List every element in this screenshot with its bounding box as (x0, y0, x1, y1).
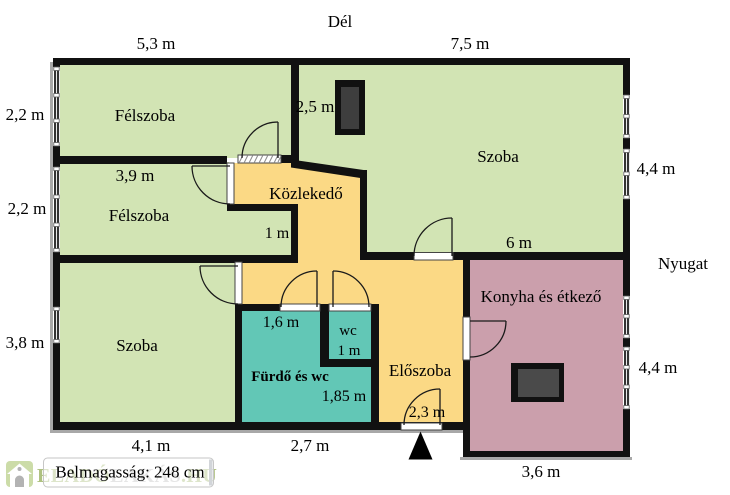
svg-text:Szoba: Szoba (477, 147, 519, 166)
svg-text:6 m: 6 m (506, 233, 532, 252)
svg-text:4,1 m: 4,1 m (132, 436, 171, 455)
svg-text:Közlekedő: Közlekedő (269, 184, 343, 203)
svg-text:Dél: Dél (328, 12, 353, 31)
svg-text:Nyugat: Nyugat (658, 254, 708, 273)
svg-text:Fürdő és wc: Fürdő és wc (251, 369, 329, 385)
svg-text:Előszoba: Előszoba (389, 361, 452, 380)
svg-text:4,4 m: 4,4 m (637, 159, 676, 178)
svg-text:wc: wc (339, 323, 357, 339)
svg-text:2,7 m: 2,7 m (291, 436, 330, 455)
svg-text:3,9 m: 3,9 m (116, 166, 155, 185)
svg-text:2,2 m: 2,2 m (6, 105, 45, 124)
svg-text:1 m: 1 m (265, 225, 290, 242)
svg-text:5,3 m: 5,3 m (137, 34, 176, 53)
svg-text:Konyha és étkező: Konyha és étkező (481, 287, 602, 306)
svg-text:3,8 m: 3,8 m (6, 333, 45, 352)
svg-text:2,2 m: 2,2 m (8, 199, 47, 218)
svg-text:1,85 m: 1,85 m (322, 388, 367, 405)
svg-text:Belmagasság: 248 cm: Belmagasság: 248 cm (55, 463, 204, 482)
svg-text:Félszoba: Félszoba (109, 206, 170, 225)
svg-text:2,5 m: 2,5 m (296, 97, 335, 116)
svg-text:4,4 m: 4,4 m (639, 358, 678, 377)
svg-text:2,3 m: 2,3 m (409, 404, 446, 421)
svg-text:3,6 m: 3,6 m (522, 462, 561, 481)
svg-text:Félszoba: Félszoba (115, 106, 176, 125)
svg-text:1,6 m: 1,6 m (263, 314, 300, 331)
svg-text:1 m: 1 m (338, 343, 361, 359)
svg-text:7,5 m: 7,5 m (451, 34, 490, 53)
svg-text:Szoba: Szoba (116, 336, 158, 355)
